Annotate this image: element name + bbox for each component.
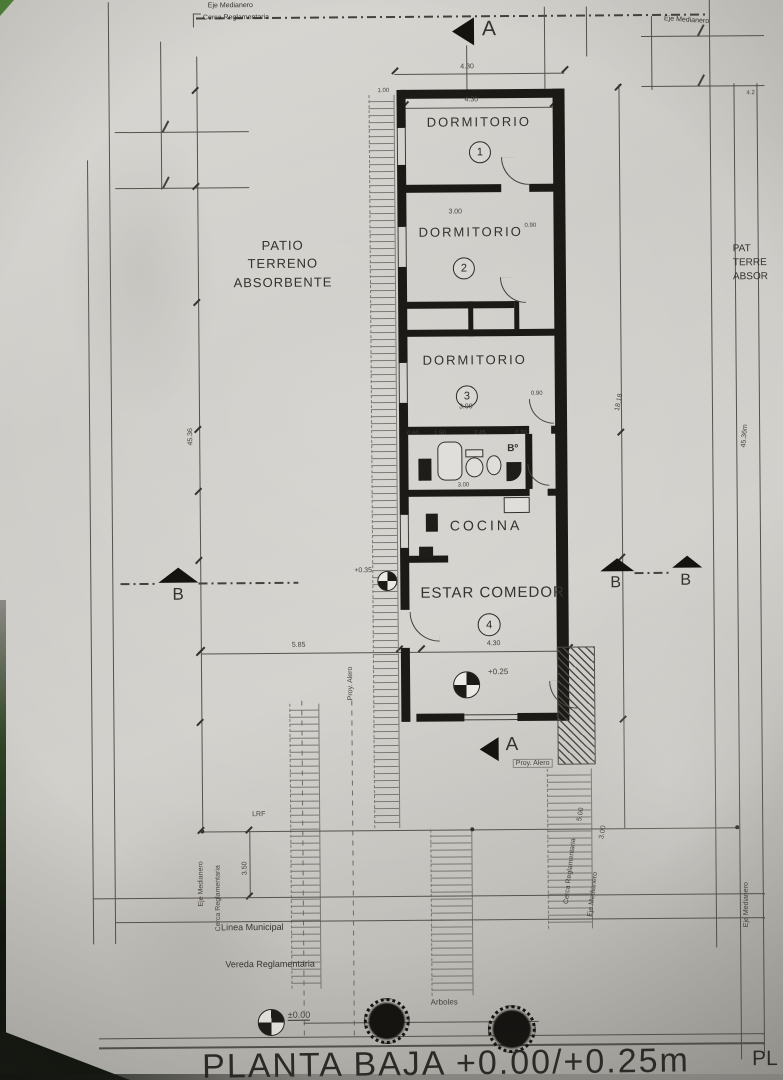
estar-number: 4 [478,613,501,636]
photographed-floor-plan: Eje Medianero Cerca Reglamentaria Eje Me… [0,0,783,1080]
dim-tick [561,66,568,73]
kitchen-fixture [419,547,433,559]
estar-label: ESTAR COMEDOR [420,585,565,603]
dim-bath3: 2.45 [474,430,486,436]
section-b-label-left: B [172,586,183,605]
bidet [486,455,501,475]
frame-line [709,0,717,947]
section-b-arrow-right2 [672,556,702,568]
kitchen-counter [504,497,530,513]
section-b-label-right1: B [610,574,621,592]
level-025: +0.25 [488,668,508,676]
arboles-label: Arboles [431,998,458,1006]
toilet [465,457,483,477]
patio-right-label: PAT TERRE ABSOR [733,242,783,285]
photo-edge-left [0,600,6,1080]
partition-dorm3-bath [403,426,529,435]
window-left [398,227,407,267]
dim-estar: 4.30 [487,640,501,647]
dim-tick [246,892,253,899]
linea-municipal-label: Linea Municipal [221,923,284,933]
wall-left [398,267,408,363]
dim-top-total: 4.30 [460,63,474,70]
photo-corner-bottomleft [0,1030,130,1080]
fence-line [651,16,653,90]
kitchen-fixture [426,514,438,532]
porch-masonry-hatch [557,646,596,764]
alero-hatch-strip [369,95,401,828]
level-000: ±0.00 [288,1011,311,1021]
dim-tick [191,87,198,94]
level-disc [453,671,480,698]
section-a-label-top: A [482,17,496,40]
wall-top [400,89,564,99]
dorm2-label: DORMITORIO [419,225,523,240]
section-b-arrow-right1 [600,558,634,571]
corner-sink [506,462,521,481]
planting-strip-center [430,829,473,995]
linea-municipal-line [93,893,765,899]
proy-alero-label-strip: Proy. Alero [347,667,354,701]
section-b-line [198,582,298,584]
dorm1-label: DORMITORIO [427,115,531,130]
toilet-tank [465,449,483,457]
cocina-label: COCINA [450,518,523,534]
dim-patio: 5.85 [292,642,306,649]
guide-line [544,7,546,89]
section-b-line [120,583,158,585]
fence-line [160,42,162,190]
wall-left [399,403,409,515]
eje-medianero-label-top: Eje Medianero [208,2,253,10]
dim-front-r2: 3.00 [598,825,607,840]
dim-right-depth: 18.18 [614,393,624,412]
section-b-label-right2: B [680,572,691,590]
window-bottom [464,714,517,720]
dim-bath1: 0.60 [407,431,419,437]
frame-line [108,2,116,944]
dim-tick [194,488,201,495]
window-left [400,515,409,548]
patio-left-label: PATIO TERRENO ABSORBENTE [223,236,343,292]
dim-tick [194,426,201,433]
plan-sheet: Eje Medianero Cerca Reglamentaria Eje Me… [0,0,783,1080]
dim-bath4: 0.30 [515,430,527,436]
closet-wall [402,301,514,309]
level-disc [258,1009,285,1036]
break-line [641,35,764,37]
line-dot [735,825,739,829]
dim-dorm2-r: 0.90 [525,223,537,229]
closet-wall [402,329,562,337]
proy-alero-label-entry: Proy. Alero [513,759,553,768]
bathtub [437,441,462,480]
partition-dorm1-dorm2 [529,184,561,192]
break-line [115,187,249,189]
dim-bath2: 1.50 [434,431,446,437]
dim-line-top [394,73,564,75]
door-arc [410,612,440,642]
planting-strip-left [289,704,321,989]
tree-symbol [364,998,410,1044]
partition-dorm3-bath [551,426,563,434]
door-arc [529,399,554,424]
door-arc [501,157,529,185]
dim-dorm2: 3.00 [448,208,462,215]
dim-small-top: 1.00 [377,88,389,94]
dim-front-left: 3.50 [242,862,249,876]
dim-line-front [249,831,251,897]
vereda-label: Vereda Reglamentaria [225,960,315,971]
section-a-label-bottom: A [506,735,519,756]
photo-edge-bottom [0,1074,783,1080]
section-b-arrow-left [158,568,198,583]
photo-corner-topleft [0,0,14,16]
closet-divider [514,301,519,336]
dorm1-number: 1 [469,141,491,163]
level-035: +0.35 [354,567,372,574]
dim-dorm3: 3.00 [459,403,473,410]
wall-bottom [416,713,464,721]
dim-tick [193,299,200,306]
closet-divider [468,301,473,336]
break-line [115,131,249,133]
line-dot [470,827,474,831]
door-arc [500,277,526,303]
dim-line-dorm1 [405,107,553,109]
dim-dorm1: 4.30 [465,96,479,103]
frame-line [756,83,765,1053]
dim-far-right-depth: 45.36m [740,424,749,448]
cerca-reglamentaria-label-top: Cerca Reglamentaria [203,14,269,22]
window-left [399,363,408,403]
dim-dorm3-r: 0.90 [531,391,543,397]
eje-medianero-left: Eje Medianero [198,861,205,906]
corner-title-fragment: PL [752,1047,778,1070]
dim-tick [192,183,199,190]
dim-tick [196,719,203,726]
frame-line [87,160,94,944]
shower-fixture [418,459,431,481]
dim-top-right: 4.2 [746,90,754,96]
line-dot [200,829,204,833]
dim-bath-w: 3.00 [458,482,470,488]
dorm3-label: DORMITORIO [423,353,527,368]
section-b-line [634,572,670,574]
bano-label: Bº [507,443,518,454]
bath-divider [525,434,532,489]
partition-bath-cocina [548,489,566,496]
dim-left-depth: 45.36 [187,428,194,446]
level-disc [377,571,397,591]
eje-medianero-farright: Eje Medianero [743,882,750,927]
partition-bath-cocina [404,489,530,497]
street-line [99,1033,764,1039]
bracket [193,13,201,14]
dorm2-number: 2 [453,257,475,279]
section-a-arrow-top [452,17,474,45]
partition-dorm1-dorm2 [401,184,501,193]
window-left [397,128,406,165]
wall-left [396,90,405,128]
frame-line [733,83,742,1059]
lrf-label: LRF [252,811,265,818]
section-a-arrow-bottom [480,737,499,761]
wall-left [397,165,406,227]
wall-left [401,648,411,722]
guide-dashed [351,700,355,1036]
break-line [641,85,764,87]
bracket [193,14,194,28]
dim-line-left [196,57,203,832]
dim-tick [195,557,202,564]
